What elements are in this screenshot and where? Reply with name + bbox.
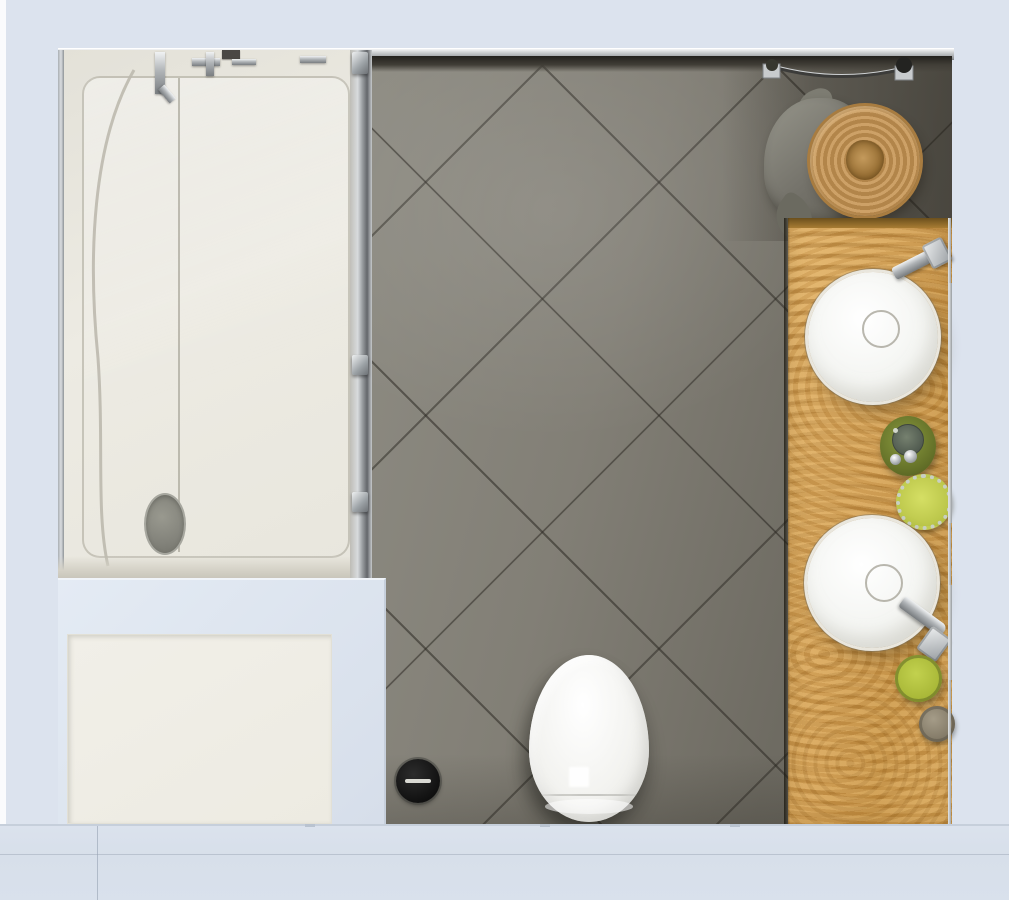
toilet-base-band [545, 799, 634, 814]
vessel-sink-top [808, 272, 938, 402]
bath-mat [67, 634, 332, 824]
sink-drain-ring [865, 564, 903, 602]
basket-knot [846, 140, 884, 180]
shower-hardware-icon [222, 50, 240, 59]
wall-seam [97, 826, 98, 900]
chrome-ball-icon [890, 454, 901, 465]
toilet-seat-seam [541, 794, 637, 796]
floor-drain [396, 759, 440, 803]
green-jar [896, 474, 952, 530]
vessel-sink-bottom [807, 518, 937, 648]
alcove [58, 578, 386, 826]
sink-drain-ring [862, 310, 900, 348]
tile-seam-tick [540, 824, 550, 827]
shower-hardware-icon [300, 56, 326, 63]
tub-drain [144, 493, 186, 555]
shower-hardware-icon [206, 52, 214, 76]
soap-dish [880, 416, 936, 476]
tile-seam-tick [730, 824, 740, 827]
wicker-basket [810, 106, 920, 216]
bottom-wall [0, 824, 1009, 900]
shower-bathtub [58, 50, 372, 580]
left-edge-strip [0, 0, 6, 900]
drain-slot [405, 779, 431, 783]
wall-rod-icon [949, 585, 952, 680]
vanity-counter [788, 218, 952, 824]
wall-seam [0, 854, 1009, 855]
counter-top-edge [788, 218, 952, 228]
counter-left-shadow [784, 218, 790, 824]
bathroom-render: Towel bar [0, 0, 1009, 900]
towel-bar: Towel bar [757, 52, 919, 94]
toilet-highlight [569, 767, 589, 787]
shower-hardware-icon [232, 59, 256, 65]
green-cup [895, 655, 942, 702]
wall-rod-icon [949, 283, 952, 523]
door-hinge-icon [352, 52, 368, 74]
tile-seam-tick [305, 824, 315, 827]
soap-stone-dot [893, 428, 898, 433]
chrome-ball-icon [904, 450, 917, 463]
door-hinge-icon [352, 355, 368, 375]
door-hinge-icon [352, 492, 368, 512]
